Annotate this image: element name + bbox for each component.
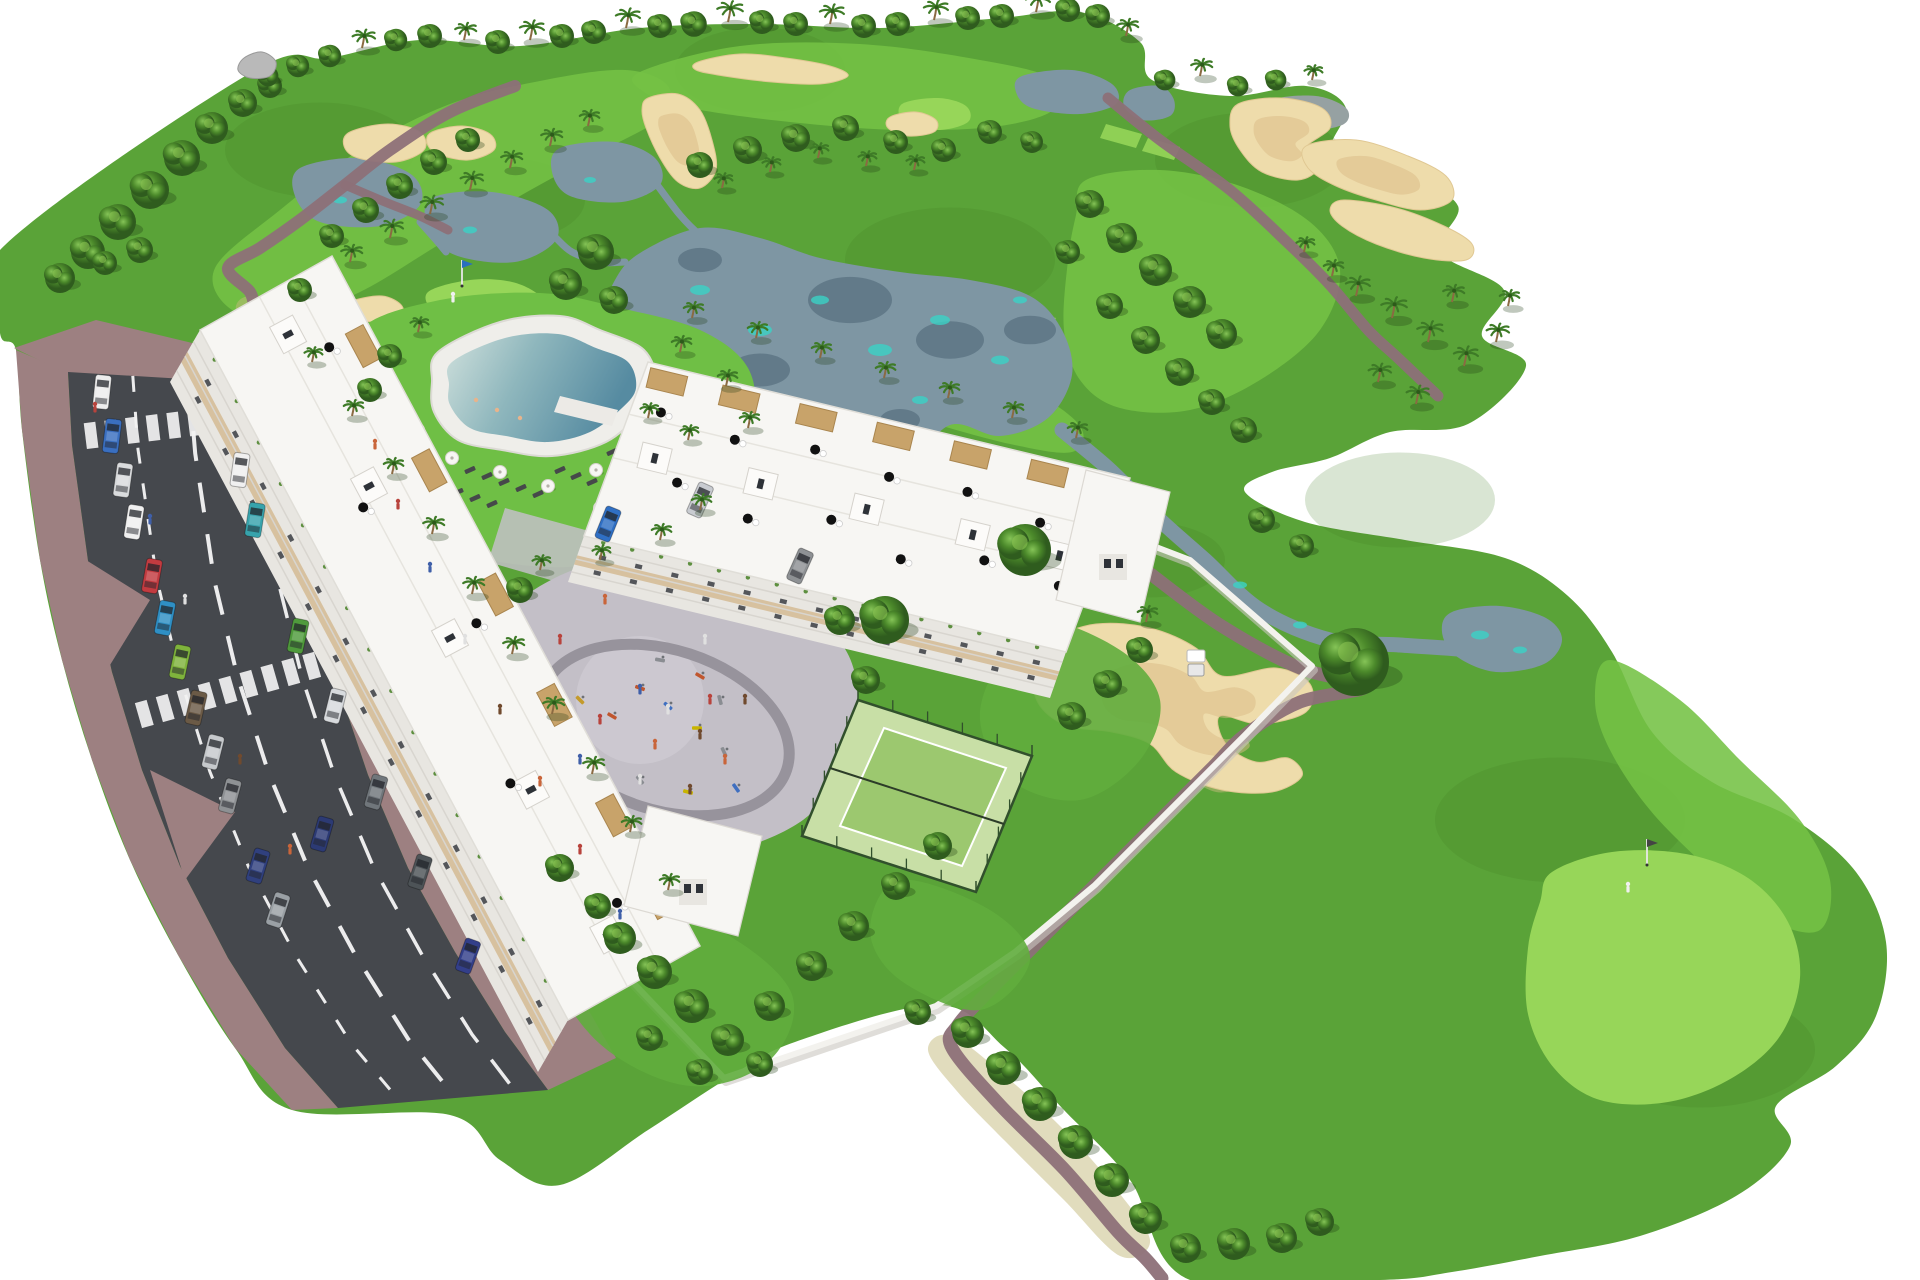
roof-umbrella: [979, 555, 989, 565]
teal-water-highlight: [1013, 297, 1027, 304]
playground-equipment-detail: [738, 784, 741, 787]
person: [373, 439, 377, 450]
teal-water-highlight: [991, 356, 1009, 365]
roof-umbrella: [810, 445, 820, 455]
tower-window: [696, 884, 703, 893]
rough-grass-patch: [1305, 453, 1495, 548]
tower-window: [1104, 559, 1111, 568]
roof-table: [481, 624, 487, 630]
roof-table: [368, 508, 374, 514]
roof-umbrella: [1035, 518, 1045, 528]
architectural-rendering: [0, 0, 1920, 1280]
playground-equipment-detail: [614, 712, 617, 715]
parasol-pole: [546, 484, 549, 487]
person: [578, 754, 582, 765]
car: [102, 418, 122, 454]
roof-table: [1045, 523, 1051, 529]
scene-svg: [0, 0, 1920, 1280]
roof-umbrella: [358, 502, 368, 512]
playground-equipment-detail: [670, 702, 673, 705]
lake-reflection: [1004, 316, 1056, 345]
person: [396, 499, 400, 510]
parasol-pole: [594, 468, 597, 471]
person: [703, 634, 707, 645]
roof-table: [906, 560, 912, 566]
teal-water-highlight: [584, 177, 596, 183]
cart-canopy: [1187, 650, 1205, 662]
person: [498, 704, 502, 715]
roof-umbrella: [505, 778, 515, 788]
roof-umbrella: [743, 514, 753, 524]
person: [603, 594, 607, 605]
playground-equipment-detail: [722, 696, 725, 699]
person: [698, 729, 702, 740]
parasol-pole: [498, 470, 501, 473]
person: [93, 402, 97, 413]
roof-umbrella: [962, 487, 972, 497]
person: [723, 754, 727, 765]
person: [688, 784, 692, 795]
roof-table: [682, 483, 688, 489]
person: [238, 754, 242, 765]
swimmer: [518, 416, 522, 420]
person: [463, 634, 467, 645]
playground-equipment-detail: [699, 724, 702, 727]
person: [183, 594, 187, 605]
teal-water-highlight: [463, 227, 477, 234]
person: [538, 776, 542, 787]
person: [638, 774, 642, 785]
person: [428, 562, 432, 573]
person: [1626, 882, 1630, 893]
parasol-pole: [450, 456, 453, 459]
roof-umbrella: [826, 515, 836, 525]
teal-water-highlight: [1233, 582, 1247, 589]
teal-water-highlight: [1513, 647, 1527, 654]
teal-water-highlight: [1471, 631, 1489, 640]
playground-equipment-detail: [702, 672, 705, 675]
person: [618, 909, 622, 920]
teal-water-highlight: [912, 396, 928, 404]
playground-equipment-detail: [582, 696, 585, 699]
swimmer: [495, 408, 499, 412]
roof-umbrella: [672, 478, 682, 488]
person: [653, 739, 657, 750]
teal-water-highlight: [1293, 622, 1307, 629]
roof-umbrella: [612, 898, 622, 908]
person: [451, 292, 455, 303]
person: [598, 714, 602, 725]
teal-water-highlight: [811, 296, 829, 305]
cart-body: [1188, 664, 1204, 676]
person: [578, 844, 582, 855]
tower-window: [1116, 559, 1123, 568]
roof-table: [836, 521, 842, 527]
roof-umbrella: [324, 342, 334, 352]
roof-umbrella: [896, 554, 906, 564]
person: [666, 704, 670, 715]
roof-table: [753, 519, 759, 525]
person: [638, 684, 642, 695]
person: [743, 694, 747, 705]
person: [558, 634, 562, 645]
roof-table: [666, 413, 672, 419]
roof-table: [894, 478, 900, 484]
lake-reflection: [916, 321, 984, 358]
roof-table: [740, 441, 746, 447]
roof-umbrella: [730, 435, 740, 445]
person: [708, 694, 712, 705]
teal-water-highlight: [930, 315, 950, 325]
roof-table: [989, 561, 995, 567]
tower-window: [684, 884, 691, 893]
roof-table: [515, 784, 521, 790]
roof-umbrella: [884, 472, 894, 482]
playground-equipment-detail: [726, 748, 729, 751]
person: [288, 844, 292, 855]
teal-water-highlight: [868, 344, 892, 356]
roof-table: [972, 493, 978, 499]
roof-table: [820, 450, 826, 456]
roof-table: [334, 348, 340, 354]
roof-umbrella: [471, 618, 481, 628]
person: [148, 514, 152, 525]
lake-reflection: [678, 248, 722, 272]
playground-equipment-detail: [662, 656, 665, 659]
teal-water-highlight: [690, 285, 710, 295]
swimmer: [474, 398, 478, 402]
